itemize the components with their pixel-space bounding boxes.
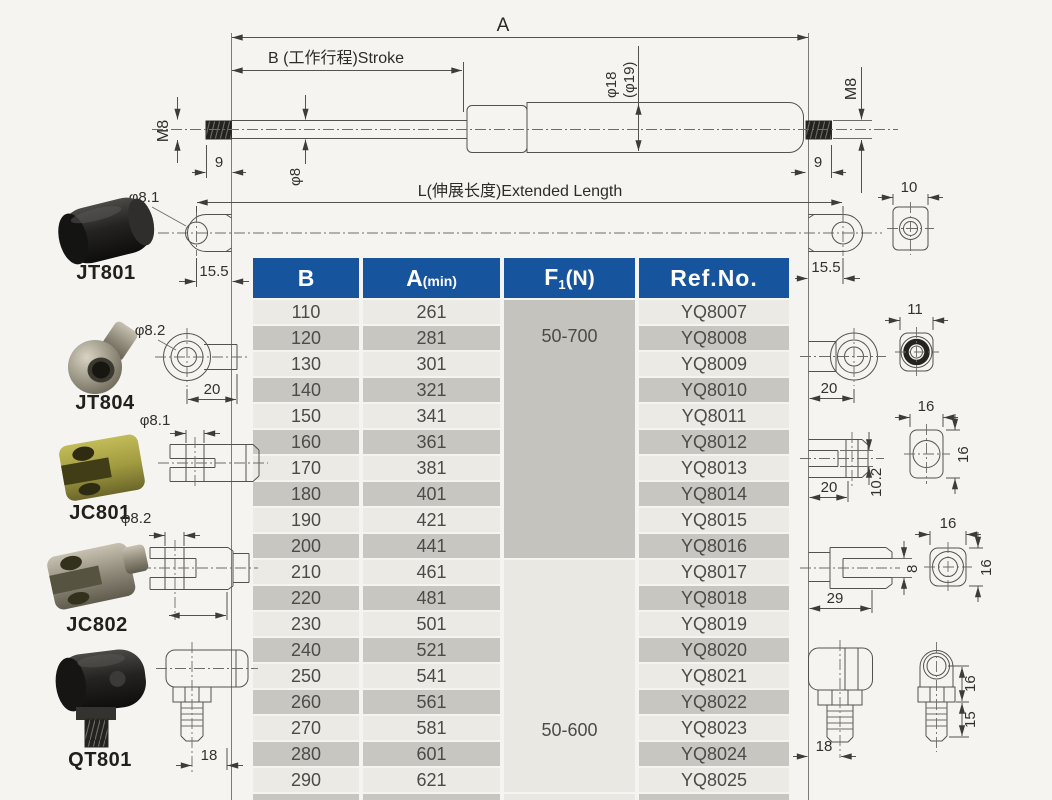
r-jc801-16t-label: 16 xyxy=(918,398,935,415)
cell-ref xyxy=(639,794,789,800)
col-header-a-sub-label: (min) xyxy=(423,273,457,289)
cell-ref: YQ8019 xyxy=(639,612,789,636)
cell-ref: YQ8012 xyxy=(639,430,789,454)
r-jc801-16r-label: 16 xyxy=(955,446,972,463)
cell-f1-range: 50-700 xyxy=(504,300,635,558)
gas-spring-drawing: A B (工作行程)Stroke M8 xyxy=(152,15,898,193)
qt801-photo xyxy=(52,647,148,747)
cell-ref: YQ8023 xyxy=(639,716,789,740)
cell-b: 280 xyxy=(253,742,359,766)
dim-stud-length-right: 9 xyxy=(791,145,846,178)
qt801-dims: 18 xyxy=(176,747,243,770)
dim-l-extended-label: L(伸展长度)Extended Length xyxy=(418,182,623,200)
cell-a-min: 601 xyxy=(363,742,500,766)
r-jc801-dims: 20 10.2 xyxy=(810,432,886,502)
dim-thread-left: M8 xyxy=(155,97,178,163)
jc801-dims: φ8.1 xyxy=(140,412,220,443)
col-header-a-label: A xyxy=(406,265,423,291)
cell-a-min: 361 xyxy=(363,430,500,454)
jc802-dims: φ8.2 xyxy=(121,510,227,620)
left-threaded-stud xyxy=(206,121,232,139)
cell-a-min: 621 xyxy=(363,768,500,792)
col-header-f-unit: (N) xyxy=(566,267,595,290)
r-qt801-dims: 18 xyxy=(793,738,856,757)
jt804-20-label: 20 xyxy=(204,381,221,398)
cell-ref: YQ8009 xyxy=(639,352,789,376)
r-jt804-side-dim: 20 xyxy=(810,380,855,403)
jc802-label: JC802 xyxy=(66,614,127,636)
cell-b: 230 xyxy=(253,612,359,636)
cell-b: 110 xyxy=(253,300,359,324)
gas-spring-body xyxy=(152,103,898,153)
jt804-label: JT804 xyxy=(75,392,135,414)
tube-dia-alt-label: (φ19) xyxy=(621,62,638,98)
r-jc802-side-view xyxy=(800,548,900,589)
r-jt804-side-view xyxy=(800,328,886,386)
col-header-f1-n: F1(N) xyxy=(504,258,635,298)
r-jc802-29-label: 29 xyxy=(827,590,844,607)
cell-ref: YQ8014 xyxy=(639,482,789,506)
cell-b: 270 xyxy=(253,716,359,740)
right-fitting-jt804: 20 11 xyxy=(800,301,948,403)
dim-extended-length: L(伸展长度)Extended Length xyxy=(197,182,844,219)
cell-a-min xyxy=(363,794,500,800)
eyelet-dia-label: φ8.1 xyxy=(129,189,160,206)
dim-stroke: B (工作行程)Stroke xyxy=(232,49,464,112)
cell-f1-range: 50-600 xyxy=(504,560,635,792)
right-eyelet-side-view xyxy=(809,212,863,256)
table-row: 21046150-600YQ8017 xyxy=(253,560,789,584)
r-jc802-dims: 29 8 xyxy=(810,541,922,613)
thread-m8-left-label: M8 xyxy=(155,120,172,142)
right-threaded-stud xyxy=(806,121,832,139)
cell-ref: YQ8024 xyxy=(639,742,789,766)
col-header-a-min: A(min) xyxy=(363,258,500,298)
jc801-photo xyxy=(58,433,147,502)
catalog-page: B A(min) F1(N) Ref.No. 11026150-700YQ800… xyxy=(0,0,1052,800)
cell-b: 170 xyxy=(253,456,359,480)
cell-b: 150 xyxy=(253,404,359,428)
right-fitting-jc802: 29 8 16 1 xyxy=(800,515,995,613)
cell-b: 200 xyxy=(253,534,359,558)
dim-eyelet-depth-left: 15.5 xyxy=(179,258,249,287)
jc801-label: JC801 xyxy=(69,502,130,524)
tube-dia-label: φ18 xyxy=(603,72,620,98)
piston-collar xyxy=(467,106,527,153)
cell-a-min: 561 xyxy=(363,690,500,714)
left-eyelet-side-view xyxy=(186,212,232,256)
stud-9-left-label: 9 xyxy=(215,154,223,171)
dim-overall-length: A xyxy=(232,15,808,38)
dim-thread-right: M8 xyxy=(833,67,872,193)
cell-b: 260 xyxy=(253,690,359,714)
r-jc802-8-label: 8 xyxy=(904,565,921,573)
qt801-18-label: 18 xyxy=(201,747,218,764)
eyelet-front-view: 10 xyxy=(878,179,943,255)
r-jc801-front-view: 16 16 xyxy=(895,398,972,494)
cell-b: 290 xyxy=(253,768,359,792)
cell-a-min: 481 xyxy=(363,586,500,610)
cell-a-min: 281 xyxy=(363,326,500,350)
dim-tube-diameter: φ18 (φ19) xyxy=(603,46,639,151)
cell-ref: YQ8010 xyxy=(639,378,789,402)
stud-9-right-label: 9 xyxy=(814,154,822,171)
right-fitting-jc801: 20 10.2 16 16 xyxy=(800,398,972,502)
table-row: 11026150-700YQ8007 xyxy=(253,300,789,324)
col-header-f-subscript: 1 xyxy=(558,277,565,292)
dim-stud-length-left: 9 xyxy=(192,145,246,178)
cell-a-min: 261 xyxy=(363,300,500,324)
thread-m8-right-label: M8 xyxy=(843,78,860,100)
col-header-ref-no: Ref.No. xyxy=(639,258,789,298)
cell-b: 130 xyxy=(253,352,359,376)
r-jc801-side-view xyxy=(800,432,884,486)
eyelet-155-right-label: 15.5 xyxy=(811,259,840,276)
cell-ref: YQ8016 xyxy=(639,534,789,558)
r-jc801-20-label: 20 xyxy=(821,479,838,496)
eyelet-front-10-label: 10 xyxy=(901,179,918,196)
left-fitting-jc801: JC801 xyxy=(58,412,268,524)
table-row-partial xyxy=(253,794,789,800)
cell-a-min: 341 xyxy=(363,404,500,428)
spec-table-body: 11026150-700YQ8007120281YQ8008130301YQ80… xyxy=(253,300,789,800)
r-jt804-front-view: 11 xyxy=(885,301,948,378)
r-qt801-side-view xyxy=(809,640,873,758)
cell-b xyxy=(253,794,359,800)
cell-b: 250 xyxy=(253,664,359,688)
cell-ref: YQ8025 xyxy=(639,768,789,792)
cell-b: 190 xyxy=(253,508,359,532)
right-fitting-qt801: 18 16 xyxy=(793,640,979,758)
cell-f1-range xyxy=(504,794,635,800)
cell-a-min: 301 xyxy=(363,352,500,376)
cell-b: 180 xyxy=(253,482,359,506)
cell-ref: YQ8013 xyxy=(639,456,789,480)
cell-a-min: 541 xyxy=(363,664,500,688)
jc801-dia-label: φ8.1 xyxy=(140,412,171,429)
col-header-b-label: B xyxy=(298,265,315,291)
cell-a-min: 521 xyxy=(363,638,500,662)
cell-b: 220 xyxy=(253,586,359,610)
cell-a-min: 381 xyxy=(363,456,500,480)
cell-ref: YQ8008 xyxy=(639,326,789,350)
cell-ref: YQ8017 xyxy=(639,560,789,584)
r-qt801-18-label: 18 xyxy=(816,738,833,755)
cell-ref: YQ8020 xyxy=(639,638,789,662)
cell-ref: YQ8007 xyxy=(639,300,789,324)
cell-a-min: 401 xyxy=(363,482,500,506)
dim-b-stroke-label: B (工作行程)Stroke xyxy=(268,49,404,67)
col-header-f-label: F xyxy=(544,264,558,290)
jt804-side-view xyxy=(155,328,248,387)
cell-a-min: 501 xyxy=(363,612,500,636)
col-header-b: B xyxy=(253,258,359,298)
cell-a-min: 461 xyxy=(363,560,500,584)
left-fitting-jt804: JT804 φ8.2 20 xyxy=(68,320,248,414)
jt804-dims: φ8.2 20 xyxy=(135,322,237,404)
cell-a-min: 421 xyxy=(363,508,500,532)
cell-a-min: 581 xyxy=(363,716,500,740)
dim-eyelet-diameter: φ8.1 xyxy=(129,189,186,226)
jt801-photo xyxy=(53,192,160,270)
r-qt801-16-label: 16 xyxy=(962,675,979,692)
r-jc802-16r-label: 16 xyxy=(978,559,995,576)
r-jt804-20-label: 20 xyxy=(821,380,838,397)
cell-a-min: 321 xyxy=(363,378,500,402)
cell-b: 160 xyxy=(253,430,359,454)
cell-b: 240 xyxy=(253,638,359,662)
dim-eyelet-depth-right: 15.5 xyxy=(795,258,860,284)
r-jc801-102-label: 10.2 xyxy=(868,468,885,497)
jt804-dia-label: φ8.2 xyxy=(135,322,166,339)
cell-ref: YQ8015 xyxy=(639,508,789,532)
jt801-label: JT801 xyxy=(76,262,135,284)
spec-table: B A(min) F1(N) Ref.No. 11026150-700YQ800… xyxy=(249,256,793,800)
jt804-photo xyxy=(68,320,139,394)
cell-ref: YQ8021 xyxy=(639,664,789,688)
r-jt804-11-label: 11 xyxy=(907,301,923,318)
cell-ref: YQ8018 xyxy=(639,586,789,610)
jc802-dia-label: φ8.2 xyxy=(121,510,152,527)
cell-ref: YQ8022 xyxy=(639,690,789,714)
dim-rod-diameter: φ8 xyxy=(287,95,306,186)
r-jc802-16t-label: 16 xyxy=(940,515,957,532)
cell-b: 140 xyxy=(253,378,359,402)
left-fitting-jt801: JT801 xyxy=(53,192,160,284)
cell-b: 210 xyxy=(253,560,359,584)
qt801-side-view xyxy=(156,642,258,774)
left-fitting-qt801: QT801 18 xyxy=(52,642,258,774)
jc802-side-view xyxy=(140,540,258,620)
r-qt801-15-label: 15 xyxy=(962,711,979,728)
dim-a-label: A xyxy=(497,15,510,36)
cell-a-min: 441 xyxy=(363,534,500,558)
left-fitting-jc802: JC802 xyxy=(46,510,258,636)
jc802-photo xyxy=(46,538,154,611)
cylinder-tube xyxy=(527,103,804,153)
cell-b: 120 xyxy=(253,326,359,350)
qt801-label: QT801 xyxy=(68,749,132,771)
col-header-ref-label: Ref.No. xyxy=(670,265,758,291)
table-header-row: B A(min) F1(N) Ref.No. xyxy=(253,258,789,298)
r-jc802-front-view: 16 16 xyxy=(915,515,995,602)
rod-dia-label: φ8 xyxy=(287,168,304,186)
cell-ref: YQ8011 xyxy=(639,404,789,428)
eyelet-155-left-label: 15.5 xyxy=(199,263,228,280)
r-qt801-front-view: 16 15 xyxy=(918,642,979,752)
